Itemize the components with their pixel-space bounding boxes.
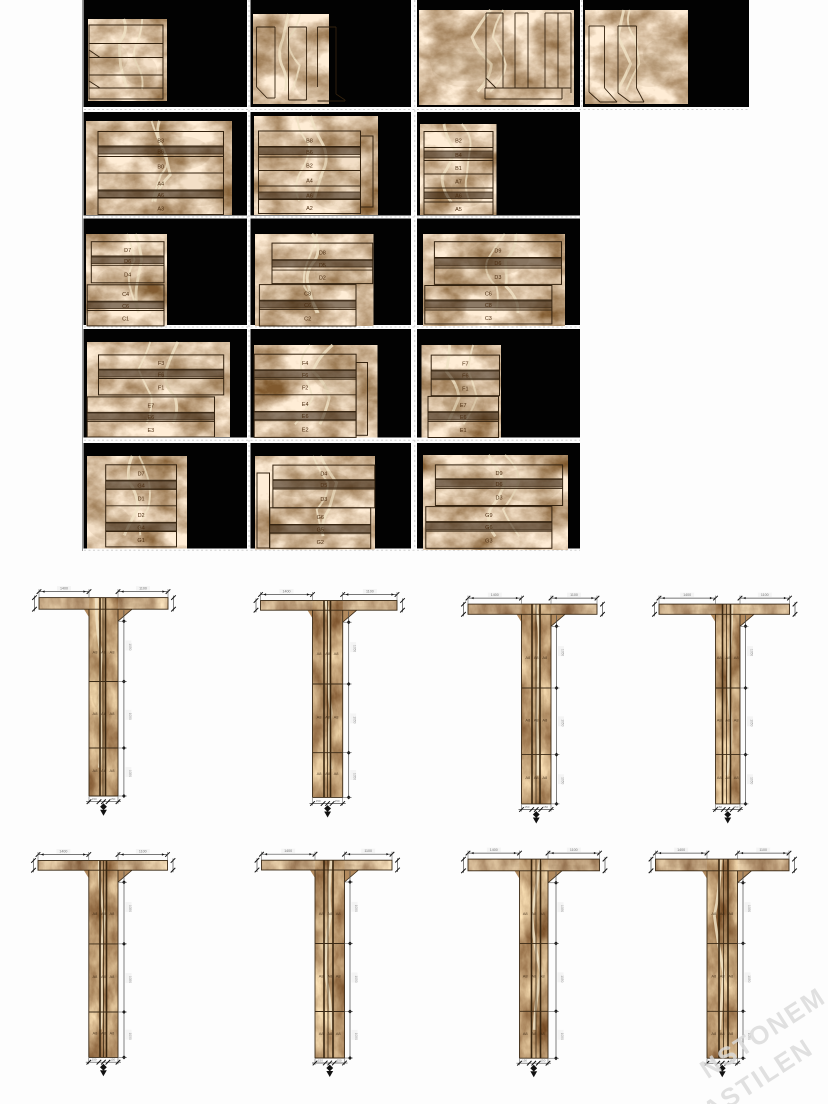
svg-text:F3: F3 bbox=[158, 361, 164, 367]
svg-text:E3: E3 bbox=[147, 428, 154, 434]
svg-text:G4: G4 bbox=[137, 525, 144, 531]
svg-text:A8: A8 bbox=[101, 1031, 107, 1036]
svg-text:A8: A8 bbox=[319, 911, 325, 916]
svg-text:A5: A5 bbox=[455, 207, 462, 213]
svg-text:A8: A8 bbox=[110, 711, 116, 716]
svg-text:A8: A8 bbox=[542, 775, 548, 780]
svg-text:C6: C6 bbox=[122, 304, 129, 310]
svg-text:150: 150 bbox=[717, 805, 722, 809]
svg-text:C2: C2 bbox=[304, 316, 311, 322]
svg-text:1400: 1400 bbox=[683, 593, 691, 597]
svg-text:1050: 1050 bbox=[560, 905, 564, 912]
svg-text:A8: A8 bbox=[336, 974, 342, 979]
svg-text:G4: G4 bbox=[137, 483, 144, 489]
svg-text:A8: A8 bbox=[525, 655, 531, 660]
svg-text:E6: E6 bbox=[302, 414, 309, 420]
svg-text:A4: A4 bbox=[157, 181, 164, 187]
svg-text:C4: C4 bbox=[122, 292, 129, 298]
svg-text:1050: 1050 bbox=[750, 777, 754, 784]
svg-text:C8: C8 bbox=[304, 291, 311, 297]
svg-text:150: 150 bbox=[92, 1058, 97, 1062]
svg-text:A8: A8 bbox=[319, 974, 325, 979]
svg-text:B6: B6 bbox=[157, 149, 164, 155]
svg-text:B2: B2 bbox=[306, 163, 313, 169]
svg-text:D2: D2 bbox=[319, 275, 326, 281]
svg-text:1050: 1050 bbox=[561, 777, 565, 784]
svg-text:150: 150 bbox=[92, 797, 97, 801]
svg-text:A8: A8 bbox=[317, 771, 323, 776]
svg-text:A8: A8 bbox=[334, 714, 340, 719]
svg-text:A8: A8 bbox=[93, 768, 99, 773]
svg-text:150: 150 bbox=[337, 1059, 342, 1063]
svg-text:1400: 1400 bbox=[490, 848, 498, 852]
svg-text:D6: D6 bbox=[124, 259, 131, 265]
svg-text:A8: A8 bbox=[325, 714, 331, 719]
svg-text:D5: D5 bbox=[319, 263, 326, 269]
svg-text:1050: 1050 bbox=[560, 1033, 564, 1040]
svg-text:E7: E7 bbox=[460, 403, 467, 409]
svg-text:G1: G1 bbox=[137, 538, 144, 544]
svg-text:E4: E4 bbox=[302, 402, 309, 408]
svg-text:150: 150 bbox=[110, 797, 115, 801]
svg-text:A8: A8 bbox=[734, 717, 740, 722]
svg-text:1050: 1050 bbox=[354, 905, 358, 912]
svg-text:A8: A8 bbox=[93, 649, 99, 654]
svg-text:A8: A8 bbox=[101, 711, 107, 716]
svg-text:1050: 1050 bbox=[128, 643, 132, 650]
svg-text:A8: A8 bbox=[531, 1031, 537, 1036]
svg-text:D6: D6 bbox=[494, 261, 501, 267]
svg-text:B8: B8 bbox=[306, 138, 313, 144]
svg-text:A8: A8 bbox=[534, 775, 540, 780]
svg-text:1050: 1050 bbox=[750, 719, 754, 726]
svg-text:C3: C3 bbox=[485, 316, 492, 322]
svg-text:A8: A8 bbox=[110, 768, 116, 773]
svg-text:D8: D8 bbox=[319, 250, 326, 256]
svg-text:E2: E2 bbox=[302, 427, 309, 433]
svg-text:A8: A8 bbox=[720, 911, 726, 916]
svg-text:A8: A8 bbox=[523, 973, 529, 978]
svg-text:A8: A8 bbox=[534, 717, 540, 722]
svg-text:F7: F7 bbox=[462, 361, 468, 367]
svg-text:150: 150 bbox=[524, 805, 529, 809]
svg-text:A8: A8 bbox=[101, 768, 107, 773]
svg-text:B0: B0 bbox=[157, 164, 164, 170]
svg-text:1050: 1050 bbox=[128, 713, 132, 720]
svg-text:A8: A8 bbox=[734, 775, 740, 780]
svg-text:F1: F1 bbox=[158, 385, 164, 391]
svg-text:A8: A8 bbox=[531, 973, 537, 978]
svg-text:D4: D4 bbox=[320, 471, 327, 477]
svg-text:1100: 1100 bbox=[366, 590, 374, 594]
svg-text:A6: A6 bbox=[455, 193, 462, 199]
svg-text:1400: 1400 bbox=[59, 850, 67, 854]
svg-text:A8: A8 bbox=[525, 775, 531, 780]
svg-text:A8: A8 bbox=[109, 1031, 115, 1036]
svg-text:C6: C6 bbox=[485, 291, 492, 297]
svg-text:1100: 1100 bbox=[139, 850, 147, 854]
svg-text:A8: A8 bbox=[720, 973, 726, 978]
svg-text:150: 150 bbox=[540, 1059, 545, 1063]
svg-text:1050: 1050 bbox=[750, 649, 754, 656]
svg-text:B6: B6 bbox=[306, 150, 313, 156]
svg-text:A8: A8 bbox=[534, 655, 540, 660]
svg-text:150: 150 bbox=[335, 799, 340, 803]
svg-text:A3: A3 bbox=[157, 206, 164, 212]
svg-text:A8: A8 bbox=[525, 717, 531, 722]
svg-text:F2: F2 bbox=[302, 385, 308, 391]
svg-text:B1: B1 bbox=[455, 166, 462, 172]
svg-text:A8: A8 bbox=[109, 974, 115, 979]
svg-text:G9: G9 bbox=[485, 513, 492, 519]
svg-text:A8: A8 bbox=[725, 775, 731, 780]
svg-text:1100: 1100 bbox=[761, 593, 769, 597]
svg-text:A6: A6 bbox=[157, 193, 164, 199]
svg-text:A8: A8 bbox=[523, 911, 529, 916]
svg-text:D4: D4 bbox=[124, 272, 131, 278]
svg-text:A8: A8 bbox=[720, 1031, 726, 1036]
svg-text:B2: B2 bbox=[455, 138, 462, 144]
svg-text:D9: D9 bbox=[495, 471, 502, 477]
svg-text:1050: 1050 bbox=[354, 1033, 358, 1040]
svg-text:A8: A8 bbox=[711, 973, 717, 978]
svg-text:D3: D3 bbox=[494, 275, 501, 281]
svg-text:A8: A8 bbox=[531, 911, 537, 916]
svg-text:C1: C1 bbox=[122, 316, 129, 322]
svg-text:G6: G6 bbox=[485, 525, 492, 531]
svg-text:E7: E7 bbox=[147, 403, 154, 409]
svg-text:A8: A8 bbox=[523, 1031, 529, 1036]
svg-text:150: 150 bbox=[316, 799, 321, 803]
svg-text:A8: A8 bbox=[325, 771, 331, 776]
svg-text:1050: 1050 bbox=[561, 649, 565, 656]
svg-text:D7: D7 bbox=[138, 471, 145, 477]
svg-text:A8: A8 bbox=[711, 1031, 717, 1036]
svg-text:C8: C8 bbox=[485, 303, 492, 309]
svg-text:E6: E6 bbox=[147, 415, 154, 421]
svg-text:A8: A8 bbox=[101, 911, 107, 916]
svg-text:F6: F6 bbox=[302, 373, 308, 379]
svg-text:E6: E6 bbox=[460, 415, 467, 421]
svg-text:A6: A6 bbox=[306, 193, 313, 199]
svg-text:G5: G5 bbox=[317, 527, 324, 533]
svg-text:A8: A8 bbox=[542, 655, 548, 660]
svg-text:A8: A8 bbox=[725, 655, 731, 660]
svg-text:A8: A8 bbox=[717, 717, 723, 722]
svg-text:1100: 1100 bbox=[139, 587, 147, 591]
svg-text:D3: D3 bbox=[320, 497, 327, 503]
svg-text:A8: A8 bbox=[327, 974, 333, 979]
svg-text:1050: 1050 bbox=[353, 773, 357, 780]
svg-text:B4: B4 bbox=[455, 153, 462, 159]
svg-text:A8: A8 bbox=[728, 911, 734, 916]
svg-text:1050: 1050 bbox=[354, 975, 358, 982]
svg-text:D7: D7 bbox=[124, 248, 131, 254]
svg-text:1050: 1050 bbox=[353, 645, 357, 652]
svg-text:A8: A8 bbox=[327, 911, 333, 916]
svg-text:F4: F4 bbox=[302, 361, 308, 367]
svg-text:A8: A8 bbox=[92, 911, 98, 916]
svg-text:A8: A8 bbox=[734, 655, 740, 660]
svg-text:A8: A8 bbox=[711, 911, 717, 916]
svg-text:A8: A8 bbox=[542, 717, 548, 722]
svg-text:1400: 1400 bbox=[491, 593, 499, 597]
svg-text:1400: 1400 bbox=[284, 849, 292, 853]
svg-text:150: 150 bbox=[733, 805, 738, 809]
svg-text:E1: E1 bbox=[460, 428, 467, 434]
svg-text:G2: G2 bbox=[317, 540, 324, 546]
svg-text:A8: A8 bbox=[725, 717, 731, 722]
svg-text:A8: A8 bbox=[334, 771, 340, 776]
svg-text:G6: G6 bbox=[317, 515, 324, 521]
svg-text:1050: 1050 bbox=[128, 976, 132, 983]
svg-text:A8: A8 bbox=[92, 1031, 98, 1036]
svg-text:A8: A8 bbox=[317, 714, 323, 719]
svg-text:A8: A8 bbox=[336, 911, 342, 916]
svg-text:1100: 1100 bbox=[570, 593, 578, 597]
svg-text:A8: A8 bbox=[540, 973, 546, 978]
svg-text:A8: A8 bbox=[327, 1031, 333, 1036]
svg-text:1050: 1050 bbox=[128, 770, 132, 777]
svg-text:D5: D5 bbox=[320, 483, 327, 489]
svg-text:1100: 1100 bbox=[364, 849, 372, 853]
svg-text:1050: 1050 bbox=[561, 719, 565, 726]
svg-text:D1: D1 bbox=[138, 496, 145, 502]
svg-text:1400: 1400 bbox=[60, 587, 68, 591]
svg-text:150: 150 bbox=[543, 805, 548, 809]
svg-text:A2: A2 bbox=[306, 206, 313, 212]
svg-text:150: 150 bbox=[318, 1059, 323, 1063]
svg-text:A8: A8 bbox=[109, 911, 115, 916]
svg-text:1050: 1050 bbox=[128, 1033, 132, 1040]
svg-text:1400: 1400 bbox=[283, 590, 291, 594]
svg-text:G3: G3 bbox=[485, 538, 492, 544]
svg-text:F6: F6 bbox=[462, 373, 468, 379]
svg-text:F6: F6 bbox=[158, 372, 164, 378]
svg-text:D3: D3 bbox=[495, 495, 502, 501]
svg-text:A8: A8 bbox=[319, 1031, 325, 1036]
svg-text:1100: 1100 bbox=[570, 848, 578, 852]
svg-text:A8: A8 bbox=[92, 974, 98, 979]
svg-text:A8: A8 bbox=[110, 649, 116, 654]
svg-text:A8: A8 bbox=[540, 1031, 546, 1036]
svg-text:B3: B3 bbox=[157, 138, 164, 144]
svg-text:A8: A8 bbox=[540, 911, 546, 916]
svg-text:A8: A8 bbox=[728, 973, 734, 978]
svg-text:1050: 1050 bbox=[353, 716, 357, 723]
svg-text:A8: A8 bbox=[717, 775, 723, 780]
svg-text:A8: A8 bbox=[93, 711, 99, 716]
svg-text:A8: A8 bbox=[101, 649, 107, 654]
svg-text:A8: A8 bbox=[717, 655, 723, 660]
svg-text:D9: D9 bbox=[494, 248, 501, 254]
svg-text:D2: D2 bbox=[138, 513, 145, 519]
svg-text:A8: A8 bbox=[317, 651, 323, 656]
svg-text:1050: 1050 bbox=[560, 975, 564, 982]
svg-text:A8: A8 bbox=[336, 1031, 342, 1036]
svg-text:C6: C6 bbox=[304, 303, 311, 309]
svg-text:A8: A8 bbox=[101, 974, 107, 979]
svg-text:150: 150 bbox=[522, 1059, 527, 1063]
svg-text:A8: A8 bbox=[334, 651, 340, 656]
svg-text:1100: 1100 bbox=[759, 848, 767, 852]
svg-text:F1: F1 bbox=[462, 386, 468, 392]
svg-text:A4: A4 bbox=[306, 178, 313, 184]
svg-text:1050: 1050 bbox=[128, 905, 132, 912]
svg-text:150: 150 bbox=[110, 1058, 115, 1062]
svg-text:A8: A8 bbox=[325, 651, 331, 656]
svg-text:1050: 1050 bbox=[747, 975, 751, 982]
svg-text:D6: D6 bbox=[495, 482, 502, 488]
svg-text:A7: A7 bbox=[455, 179, 462, 185]
svg-text:1400: 1400 bbox=[677, 848, 685, 852]
svg-text:1050: 1050 bbox=[747, 905, 751, 912]
